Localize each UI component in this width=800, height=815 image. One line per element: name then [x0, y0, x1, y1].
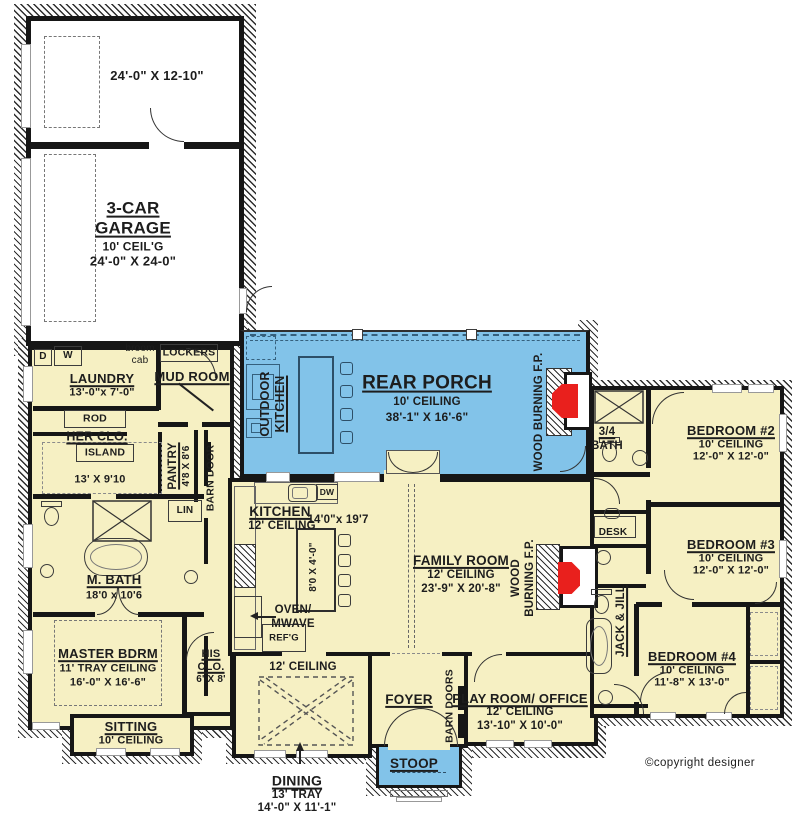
window: [486, 740, 514, 748]
bedroom3-dims: 12'-0" X 12'-0": [693, 564, 769, 577]
bedroom2-label: BEDROOM #2: [687, 423, 775, 439]
oven-label: MWAVE: [271, 618, 315, 632]
wall: [33, 494, 91, 499]
bedroom2-dims: 12'-0" X 12'-0": [693, 450, 769, 463]
dining-ceiling-note: 12' CEILING: [269, 661, 337, 675]
wall: [636, 602, 662, 607]
sink-icon: [632, 450, 648, 466]
wall: [590, 544, 648, 548]
kitchen-ceiling: 12' CEILING: [248, 520, 316, 534]
jack-jill-label: JACK & JILL: [615, 585, 629, 657]
stool-icon: [338, 534, 351, 547]
garage-name: 3-CAR: [90, 199, 176, 219]
garage-divider-wall: [184, 142, 240, 149]
desk-label: DESK: [599, 527, 628, 539]
stool-icon: [340, 431, 353, 444]
wall: [646, 500, 651, 574]
family-room-dims: 23'-9" X 20'-8": [421, 583, 500, 597]
stool-icon: [338, 554, 351, 567]
sink-icon: [292, 487, 308, 499]
lockers-label: LOCKERS: [163, 347, 216, 360]
wall: [158, 422, 188, 427]
porch-edge-line: [250, 334, 580, 336]
stool-icon: [340, 362, 353, 375]
family-fireplace-label: WOOD BURNING F.P.: [510, 539, 538, 617]
outdoor-kitchen-label: KITCHEN: [273, 371, 288, 436]
window: [779, 540, 787, 578]
stool-icon: [340, 385, 353, 398]
outdoor-kitchen-label: OUTDOOR KITCHEN: [258, 371, 288, 436]
range-icon: [234, 544, 256, 588]
stool-icon: [338, 574, 351, 587]
wall: [204, 518, 208, 564]
rear-porch-dims: 38'-1" X 16'-6": [386, 410, 469, 424]
open-ceiling-line: [392, 653, 440, 654]
foyer-label: FOYER: [385, 692, 433, 708]
broom-cab-label: broom: [125, 343, 154, 355]
pantry-label: PANTRY 4'8 X 8'6: [167, 442, 193, 489]
playroom-label: PLAY ROOM/ OFFICE: [452, 691, 588, 707]
wall: [182, 712, 234, 716]
barn-door-label: BARN DOOR: [205, 445, 218, 512]
wall: [592, 472, 650, 477]
stoop-step: [396, 797, 442, 802]
rod-label: ROD: [83, 413, 107, 426]
stoop-step-line: [392, 772, 446, 773]
closet-island-label: ISLAND: [85, 447, 125, 460]
arrow-head: [296, 742, 304, 751]
sink-icon: [184, 570, 198, 584]
window: [334, 472, 380, 482]
fridge-label: REF'G: [269, 632, 299, 643]
washer-label: W: [63, 350, 73, 362]
window: [23, 366, 33, 402]
linen-label: LIN: [177, 505, 194, 517]
sink-icon: [596, 550, 611, 565]
kitchen-island-dims: 8'0 X 4'-0": [308, 542, 320, 592]
garage-ceiling: 10' CEIL'G: [90, 239, 176, 253]
door-opening: [390, 650, 442, 658]
playroom-ceiling: 12' CEILING: [486, 706, 554, 720]
dining-ceiling: 13' TRAY: [272, 789, 323, 803]
master-bedroom-dims: 16'-0" X 16'-6": [70, 676, 146, 689]
shower-icon: [594, 390, 644, 424]
garage-dims: 24'-0" X 24-0": [90, 254, 176, 270]
sitting-ceiling: 10' CEILING: [99, 734, 164, 747]
window: [150, 748, 180, 756]
bathtub-icon: [590, 626, 608, 666]
shower-icon: [92, 500, 152, 542]
kitchen-label: KITCHEN: [249, 504, 310, 520]
his-closet-dims: 6' X 8': [196, 674, 226, 686]
outdoor-kitchen-label: OUTDOOR: [258, 371, 273, 436]
master-bedroom-ceiling: 11' TRAY CEILING: [60, 662, 157, 675]
window: [650, 712, 676, 720]
mudroom-label: MUD ROOM: [154, 369, 229, 385]
stoop-label: STOOP: [390, 756, 438, 772]
chair-icon: [604, 508, 620, 519]
stool-icon: [338, 594, 351, 607]
pantry-name: PANTRY: [167, 442, 181, 489]
bedroom4-dims: 11'-8" X 13'-0": [654, 676, 730, 689]
window: [524, 740, 552, 748]
toilet-icon: [44, 507, 59, 526]
garage-name: GARAGE: [90, 219, 176, 239]
dishwasher-label: DW: [320, 487, 335, 497]
rear-porch-label: REAR PORCH: [362, 373, 492, 396]
sink-icon: [598, 690, 613, 705]
porch-post: [466, 329, 477, 340]
floor-plan: 24'-0" X 12-10" 3-CAR GARAGE 10' CEIL'G …: [0, 0, 800, 815]
wall: [182, 612, 187, 716]
oven-label: OVEN/ MWAVE: [271, 604, 315, 632]
her-closet-dims: 13' X 9'10: [74, 473, 125, 486]
sink-icon: [40, 564, 54, 578]
garage-upper-dims: 24'-0" X 12-10": [110, 68, 204, 84]
window: [712, 384, 742, 393]
closet-shelving: [750, 666, 778, 710]
bedroom3-label: BEDROOM #3: [687, 537, 775, 553]
family-fireplace-label: BURNING F.P.: [524, 539, 538, 617]
outdoor-appliance: [246, 336, 276, 360]
stool-icon: [340, 408, 353, 421]
garage-window: [21, 158, 31, 326]
ceiling-break-line: [408, 484, 409, 648]
kitchen-dims: 14'0"x 19'7: [307, 514, 368, 528]
family-room-ceiling: 12' CEILING: [427, 569, 495, 583]
wall: [138, 612, 204, 617]
wall: [194, 430, 198, 502]
bathtub-icon: [90, 544, 142, 570]
fireplace-masonry: [536, 544, 560, 610]
his-closet-name: HIS: [196, 648, 226, 661]
bath-34-label: 3/4: [591, 426, 623, 440]
wall: [33, 612, 95, 617]
laundry-dims: 13'-0"x 7'-0": [69, 386, 134, 399]
dryer-label: D: [39, 351, 46, 363]
her-closet-label: HER CLO.: [66, 430, 127, 445]
garage-window: [21, 44, 31, 128]
arrow: [299, 750, 301, 764]
pantry-dims: 4'8 X 8'6: [181, 442, 193, 489]
window: [748, 384, 774, 393]
porch-island: [298, 356, 334, 454]
wall: [746, 660, 780, 664]
his-closet-label: HIS CLO. 6' X 8': [196, 648, 226, 686]
wall: [202, 422, 232, 427]
porch-edge-line: [250, 340, 580, 341]
broom-cab-label: cab: [125, 355, 154, 367]
master-bath-dims: 18'0 x 10'6: [86, 589, 142, 602]
stoop-step: [390, 790, 448, 797]
bedroom4-label: BEDROOM #4: [648, 649, 736, 665]
window: [266, 472, 290, 482]
tray-ceiling-x: [256, 674, 356, 748]
wall: [634, 604, 639, 676]
window: [254, 750, 286, 758]
window: [32, 722, 60, 730]
garage-divider-wall: [31, 142, 149, 149]
master-bedroom-label: MASTER BDRM: [58, 646, 158, 662]
arrow-head: [250, 612, 258, 620]
garage-storage-outline: [44, 154, 96, 322]
wall: [692, 602, 782, 607]
dining-dims: 14'-0" X 11'-1": [258, 802, 337, 815]
window: [779, 414, 787, 452]
porch-fireplace-label: WOOD BURNING F.P.: [533, 353, 547, 472]
bath-34-label: 3/4 BATH: [591, 426, 623, 454]
rear-porch-ceiling: 10' CEILING: [393, 396, 461, 410]
wall: [648, 502, 782, 507]
copyright-text: ©copyright designer: [645, 757, 755, 771]
oven-label: OVEN/: [271, 604, 315, 618]
garage-label: 3-CAR GARAGE 10' CEIL'G 24'-0" X 24-0": [90, 199, 176, 270]
window: [23, 524, 33, 568]
window: [23, 630, 33, 674]
bath-34-label: BATH: [591, 440, 623, 454]
broom-cab-label: broom cab: [125, 343, 154, 367]
master-bath-label: M. BATH: [87, 572, 142, 588]
dining-label: DINING: [272, 773, 322, 790]
garage-storage-outline: [44, 36, 100, 128]
barn-door-panel: [458, 714, 464, 738]
laundry-label: LAUNDRY: [70, 371, 134, 387]
sitting-label: SITTING: [105, 719, 158, 735]
wall: [116, 494, 204, 499]
family-fireplace-label: WOOD: [510, 539, 524, 617]
closet-shelving: [750, 612, 778, 656]
his-closet-name: CLO.: [196, 661, 226, 674]
porch-post: [352, 329, 363, 340]
family-room-label: FAMILY ROOM: [413, 553, 509, 569]
window: [96, 748, 126, 756]
toilet-icon: [594, 595, 609, 614]
playroom-dims: 13'-10" X 10'-0": [477, 720, 563, 734]
